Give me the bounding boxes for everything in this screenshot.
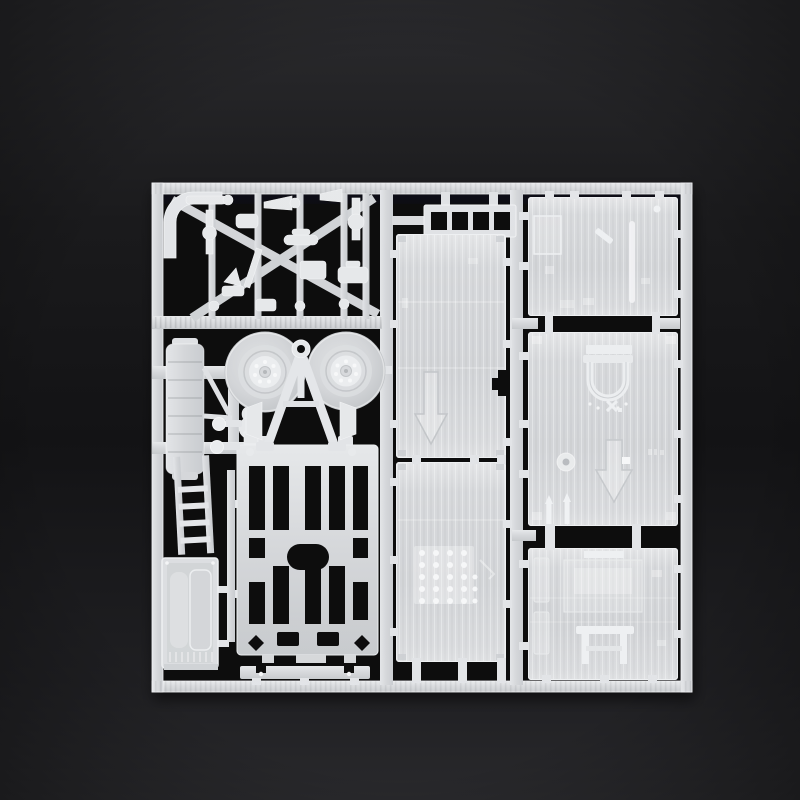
side-panel-hatch [528,332,678,526]
frame-rails [152,183,692,692]
door-panel [162,558,218,670]
photo-canvas [0,0,800,800]
round-boss [557,453,575,471]
curved-fender-part [164,192,222,258]
background [0,0,800,800]
wheel-hub [249,356,281,388]
wheel-hub [331,356,362,387]
tow-ring [292,340,310,358]
window-outline [534,216,561,254]
buffer-strip [240,666,370,685]
gate-stubs [218,191,683,683]
a-frame-drawbar [246,358,356,456]
sprue-backing [152,183,692,692]
panel-pins [545,493,571,524]
window-strip-part [392,192,516,237]
embossed-arrow-large [596,440,632,502]
embossed-arrow [415,372,447,444]
floor-panel-rivets [396,462,506,662]
tire [307,332,385,410]
sprue-photo [0,0,800,800]
wheel-right [307,332,385,410]
door-window [190,570,211,650]
lobed-bracket-part [239,406,261,444]
wheel-left [225,332,305,412]
cross-mark [606,400,622,412]
hatch-rect [564,560,642,612]
suspension-parts-cluster [164,189,378,319]
bench-detail [576,626,634,664]
chassis-frame [227,406,378,663]
ladder-part [173,455,214,555]
backdrop [0,0,800,800]
photo-sheen [152,183,692,692]
wing-plate-right [340,402,356,440]
side-sill-strip [227,470,235,642]
rivet-plate [414,546,474,604]
side-panel-bench [528,548,678,680]
sprue [152,183,692,692]
wing-plate-left [246,402,262,440]
roof-panel-arrow [396,234,506,458]
small-fittings [186,189,368,311]
runner-bars [152,190,680,685]
chassis-cutouts [248,466,370,651]
pin-parts [211,418,243,454]
tire [225,332,305,412]
vignette-shading [0,0,800,800]
hatch-horseshoe [590,362,626,398]
rivet-grid [419,550,478,604]
side-panel-top [528,197,678,316]
tank-part [166,338,232,480]
